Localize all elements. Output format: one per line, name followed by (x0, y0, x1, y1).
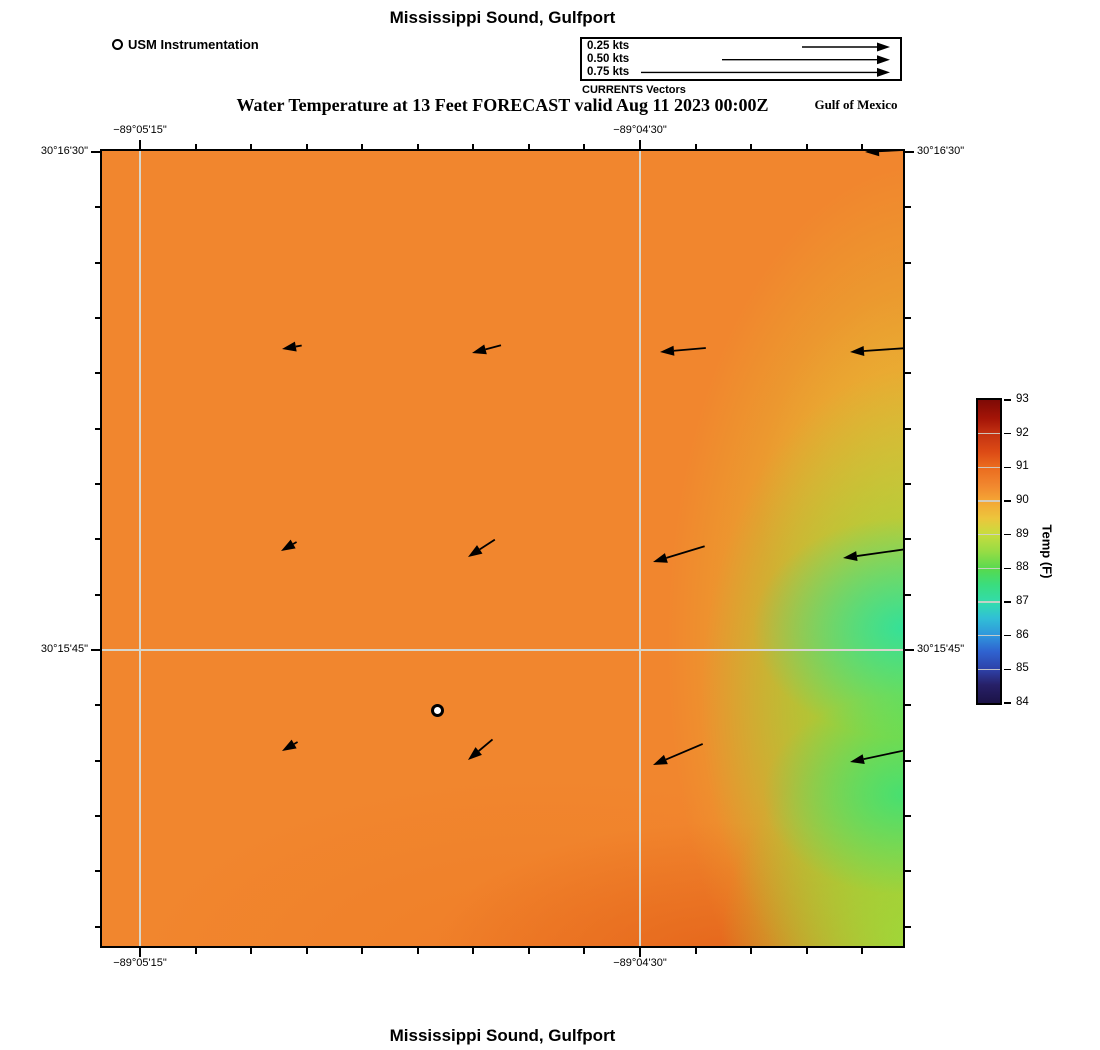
colorbar-tick-label: 85 (1016, 662, 1029, 674)
axis-tick (639, 140, 641, 149)
axis-tick (95, 760, 101, 762)
colorbar-tick-label: 88 (1016, 561, 1029, 573)
axis-tick (250, 948, 252, 954)
x-axis-label: −89°05'15" (70, 124, 210, 136)
axis-tick (905, 428, 911, 430)
axis-tick (750, 948, 752, 954)
axis-tick (583, 948, 585, 954)
axis-tick (95, 704, 101, 706)
axis-tick (806, 948, 808, 954)
top-title: Mississippi Sound, Gulfport (0, 8, 1005, 28)
axis-tick (417, 144, 419, 150)
region-label: Gulf of Mexico (800, 97, 912, 113)
colorbar-title: Temp (F) (1040, 491, 1055, 611)
axis-tick (306, 948, 308, 954)
colorbar-gradient (978, 400, 1000, 703)
axis-tick (95, 483, 101, 485)
x-axis-label: −89°04'30" (570, 124, 710, 136)
axis-tick (95, 538, 101, 540)
axis-tick (695, 144, 697, 150)
colorbar-tick (1004, 399, 1011, 401)
colorbar-tick-label: 89 (1016, 528, 1029, 540)
axis-tick (472, 144, 474, 150)
colorbar-tick (1004, 433, 1011, 435)
axis-tick (361, 144, 363, 150)
axis-tick (905, 649, 914, 651)
colorbar-tick-label: 91 (1016, 460, 1029, 472)
colorbar-tick (1004, 467, 1011, 469)
colorbar (976, 398, 1002, 705)
colorbar-tick-label: 93 (1016, 393, 1029, 405)
open-circle-marker-icon (112, 39, 123, 50)
axis-tick (91, 649, 100, 651)
x-axis-label: −89°04'30" (570, 957, 710, 969)
axis-tick (905, 483, 911, 485)
axis-tick (639, 948, 641, 957)
colorbar-tick-label: 86 (1016, 629, 1029, 641)
instrument-legend-label: USM Instrumentation (128, 37, 259, 52)
map-inner (102, 151, 903, 946)
instrument-legend: USM Instrumentation (112, 37, 259, 52)
axis-tick (905, 815, 911, 817)
colorbar-gridline (978, 568, 1000, 570)
colorbar-gridline (978, 534, 1000, 536)
colorbar-tick-label: 84 (1016, 696, 1029, 708)
axis-tick (95, 926, 101, 928)
colorbar-gridline (978, 669, 1000, 671)
colorbar-tick (1004, 702, 1011, 704)
colorbar-tick (1004, 669, 1011, 671)
y-axis-label: 30°15'45" (0, 643, 88, 655)
axis-tick (695, 948, 697, 954)
axis-tick (905, 704, 911, 706)
axis-tick (528, 144, 530, 150)
station-marker (431, 704, 444, 717)
axis-tick (905, 372, 911, 374)
colorbar-tick-label: 90 (1016, 494, 1029, 506)
axis-tick (905, 317, 911, 319)
current-vectors (102, 151, 903, 946)
colorbar-tick-label: 92 (1016, 427, 1029, 439)
axis-tick (905, 760, 911, 762)
colorbar-tick (1004, 568, 1011, 570)
y-axis-label: 30°16'30" (0, 145, 88, 157)
colorbar-tick (1004, 601, 1011, 603)
colorbar-gridline (978, 433, 1000, 435)
map (100, 149, 905, 948)
figure: Mississippi Sound, Gulfport USM Instrume… (0, 0, 1100, 1050)
axis-tick (95, 594, 101, 596)
axis-tick (583, 144, 585, 150)
axis-tick (95, 428, 101, 430)
axis-tick (905, 926, 911, 928)
axis-tick (905, 870, 911, 872)
axis-tick (905, 262, 911, 264)
axis-tick (472, 948, 474, 954)
axis-tick (905, 151, 914, 153)
axis-tick (95, 206, 101, 208)
axis-tick (195, 948, 197, 954)
axis-tick (95, 262, 101, 264)
axis-tick (806, 144, 808, 150)
axis-tick (528, 948, 530, 954)
currents-legend-arrows (582, 39, 900, 79)
axis-tick (361, 948, 363, 954)
axis-tick (195, 144, 197, 150)
axis-tick (905, 594, 911, 596)
axis-tick (91, 151, 100, 153)
axis-tick (417, 948, 419, 954)
axis-tick (250, 144, 252, 150)
colorbar-gridline (978, 467, 1000, 469)
axis-tick (95, 815, 101, 817)
axis-tick (95, 372, 101, 374)
axis-tick (139, 140, 141, 149)
axis-tick (750, 144, 752, 150)
colorbar-gridline (978, 601, 1000, 603)
axis-tick (905, 538, 911, 540)
y-axis-label: 30°15'45" (917, 643, 1017, 655)
colorbar-tick (1004, 534, 1011, 536)
colorbar-tick (1004, 635, 1011, 637)
colorbar-tick-label: 87 (1016, 595, 1029, 607)
axis-tick (861, 144, 863, 150)
axis-tick (905, 206, 911, 208)
bottom-title: Mississippi Sound, Gulfport (0, 1026, 1005, 1046)
axis-tick (861, 948, 863, 954)
axis-tick (139, 948, 141, 957)
colorbar-gridline (978, 635, 1000, 637)
axis-tick (95, 317, 101, 319)
y-axis-label: 30°16'30" (917, 145, 1017, 157)
x-axis-label: −89°05'15" (70, 957, 210, 969)
axis-tick (95, 870, 101, 872)
axis-tick (306, 144, 308, 150)
colorbar-tick (1004, 500, 1011, 502)
currents-legend-box: 0.25 kts 0.50 kts 0.75 kts (580, 37, 902, 81)
colorbar-gridline (978, 500, 1000, 502)
